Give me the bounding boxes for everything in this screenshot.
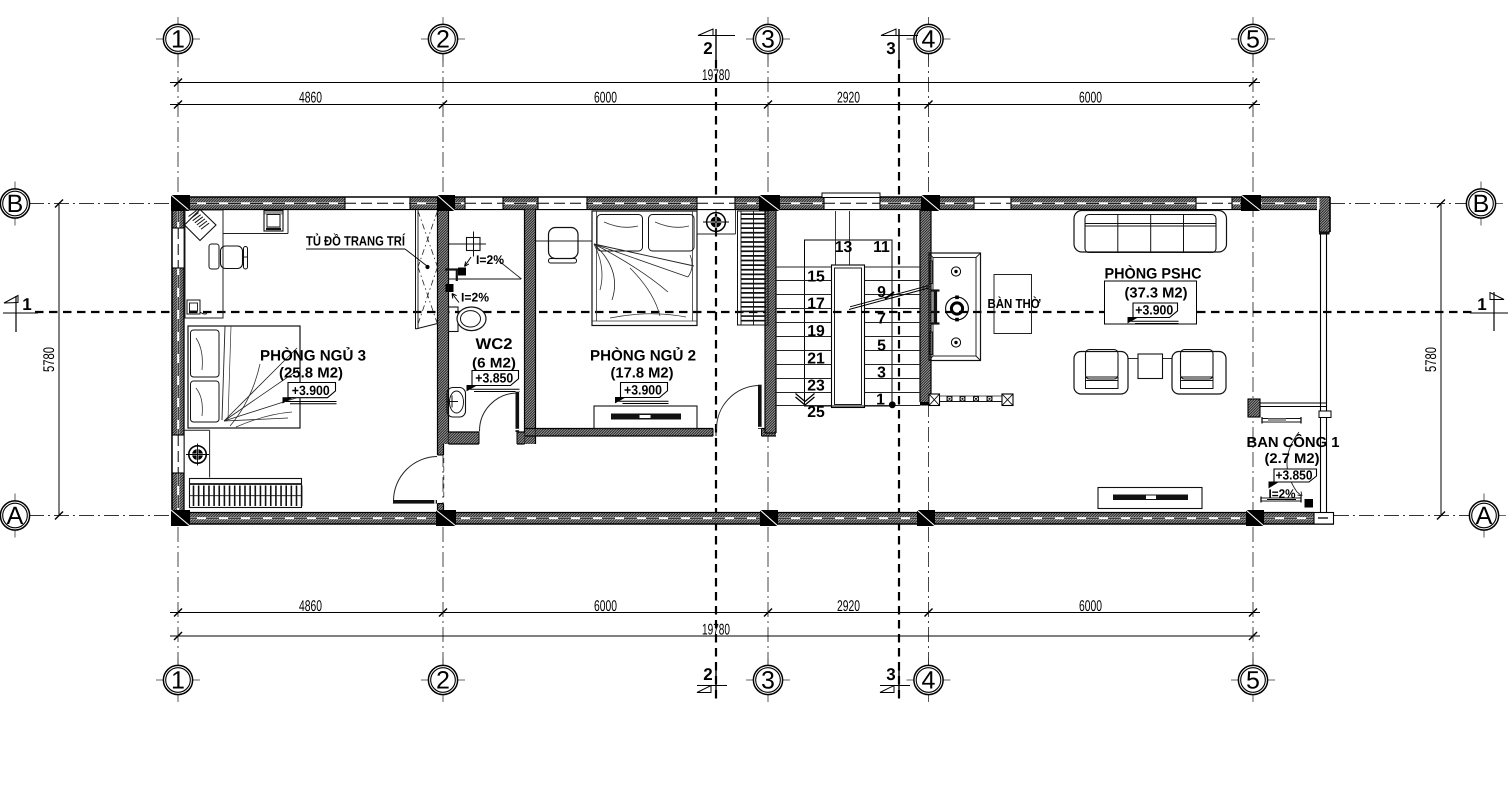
svg-text:2: 2	[703, 39, 712, 58]
svg-text:3: 3	[761, 667, 775, 695]
svg-text:4: 4	[922, 26, 936, 54]
svg-text:6000: 6000	[1079, 90, 1102, 107]
svg-text:3: 3	[886, 665, 895, 684]
svg-text:3: 3	[877, 365, 886, 382]
svg-text:(17.8 M2): (17.8 M2)	[611, 366, 674, 382]
svg-text:+3.900: +3.900	[292, 383, 330, 398]
svg-text:A: A	[7, 502, 24, 530]
svg-text:6000: 6000	[594, 90, 617, 107]
svg-text:5: 5	[1246, 667, 1260, 695]
svg-text:1: 1	[171, 26, 185, 54]
svg-text:5: 5	[1246, 26, 1260, 54]
svg-text:BAN CÔNG 1: BAN CÔNG 1	[1247, 434, 1340, 451]
svg-text:(25.8 M2): (25.8 M2)	[279, 366, 343, 382]
svg-text:A: A	[1476, 502, 1493, 530]
svg-text:4860: 4860	[299, 90, 322, 107]
svg-text:5: 5	[877, 338, 886, 355]
svg-text:(37.3 M2): (37.3 M2)	[1125, 286, 1188, 302]
svg-text:2: 2	[436, 667, 450, 695]
svg-text:PHÒNG PSHC: PHÒNG PSHC	[1105, 265, 1202, 283]
svg-text:WC2: WC2	[476, 336, 513, 353]
svg-text:19780: 19780	[702, 622, 730, 639]
svg-text:15: 15	[807, 269, 825, 286]
svg-text:+3.900: +3.900	[624, 383, 662, 398]
svg-text:4860: 4860	[299, 598, 322, 615]
svg-text:23: 23	[807, 378, 825, 395]
svg-text:2: 2	[703, 665, 712, 684]
svg-text:2920: 2920	[837, 598, 860, 615]
svg-text:1: 1	[171, 667, 185, 695]
svg-text:17: 17	[807, 296, 825, 313]
svg-text:1: 1	[1477, 295, 1486, 314]
svg-text:TỦ ĐỒ TRANG TRÍ: TỦ ĐỒ TRANG TRÍ	[306, 233, 406, 249]
svg-text:I=2%: I=2%	[461, 291, 489, 305]
svg-text:19780: 19780	[702, 67, 730, 84]
svg-text:6000: 6000	[594, 598, 617, 615]
svg-text:25: 25	[807, 404, 825, 421]
svg-text:5780: 5780	[1423, 347, 1440, 372]
svg-text:+3.850: +3.850	[475, 371, 513, 386]
svg-text:(2.7 M2): (2.7 M2)	[1265, 450, 1320, 466]
svg-text:21: 21	[807, 351, 825, 368]
svg-text:13: 13	[835, 239, 853, 256]
svg-text:B: B	[1473, 190, 1490, 218]
svg-text:7: 7	[877, 311, 886, 328]
svg-text:11: 11	[873, 239, 890, 256]
svg-text:6000: 6000	[1079, 598, 1102, 615]
svg-text:BÀN THỜ: BÀN THỜ	[988, 296, 1042, 311]
svg-text:3: 3	[761, 26, 775, 54]
svg-text:PHÒNG NGỦ 2: PHÒNG NGỦ 2	[590, 347, 696, 365]
svg-text:+3.850: +3.850	[1276, 467, 1313, 482]
svg-text:I=2%: I=2%	[1269, 487, 1296, 501]
svg-text:19: 19	[807, 323, 825, 340]
svg-text:PHÒNG NGỦ 3: PHÒNG NGỦ 3	[260, 347, 366, 365]
svg-text:3: 3	[886, 39, 895, 58]
svg-text:B: B	[7, 190, 24, 218]
svg-text:4: 4	[922, 667, 936, 695]
svg-text:1: 1	[876, 392, 885, 409]
svg-text:+3.900: +3.900	[1135, 303, 1173, 318]
svg-text:(6 M2): (6 M2)	[472, 355, 516, 371]
svg-text:2920: 2920	[837, 90, 860, 107]
svg-text:I=2%: I=2%	[476, 253, 504, 267]
svg-text:5780: 5780	[41, 347, 58, 372]
svg-text:2: 2	[436, 26, 450, 54]
svg-text:1: 1	[22, 295, 31, 314]
